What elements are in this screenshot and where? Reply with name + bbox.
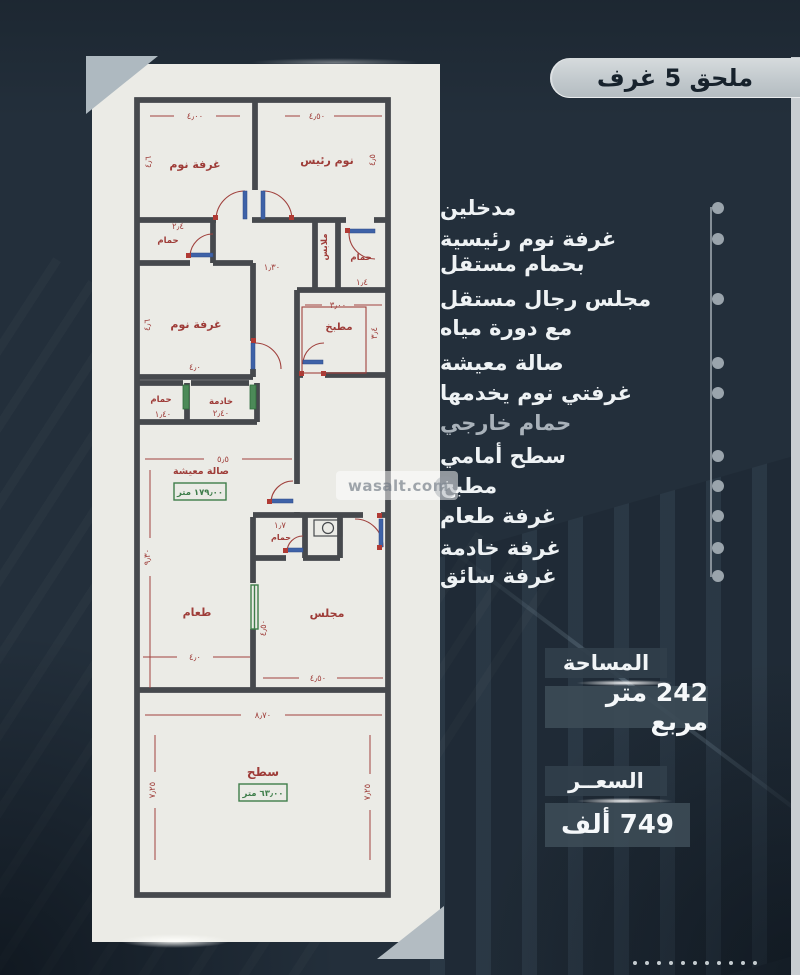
dim-label: ٢٫٤ — [172, 222, 184, 232]
title-badge: ملحق 5 غرف — [550, 58, 800, 98]
feature-item: سطح أمامي — [440, 442, 700, 470]
feature-item: بحمام مستقل — [440, 250, 700, 278]
room-label: حمام — [350, 253, 371, 263]
watermark-text: wasalt.com — [348, 477, 432, 497]
feature-item: غرفة طعام — [440, 502, 700, 530]
feature-text: مع دورة مياه — [440, 316, 572, 340]
room-label: غرفة نوم — [170, 318, 221, 331]
floorplan-drawing: غرفة نومنوم رئيسحمامملابسحمامغرفة نوممطب… — [92, 64, 440, 942]
feature-item: مجلس رجال مستقل — [440, 285, 700, 313]
price-value-text: 749 ألف — [561, 810, 674, 840]
room-label: خادمة — [209, 397, 233, 407]
feature-text: غرفة خادمة — [440, 536, 561, 560]
feature-text: حمام خارجي — [440, 411, 571, 435]
feature-item: غرفتي نوم يخدمها — [440, 379, 700, 407]
bullet-icon — [712, 480, 724, 492]
feature-text: مدخلين — [440, 196, 516, 220]
area-labels: ١٧٩٫٠٠ متر٦٣٫٠٠ متر — [176, 488, 284, 799]
room-label: طعام — [183, 606, 212, 619]
room-label: مجلس — [310, 607, 345, 620]
area-header: المساحة — [545, 648, 667, 678]
price-title: السعــر — [568, 769, 644, 793]
price-value: 749 ألف — [545, 803, 690, 847]
decorative-dots — [633, 961, 757, 965]
listing-poster: غرفة نومنوم رئيسحمامملابسحمامغرفة نوممطب… — [0, 0, 800, 975]
bullet-icon — [712, 542, 724, 554]
room-label: سطح — [247, 765, 279, 779]
feature-item: مدخلين — [440, 194, 700, 222]
feature-item: مطبخ — [440, 472, 700, 500]
feature-item: غرفة خادمة — [440, 534, 700, 562]
bullet-icon — [712, 233, 724, 245]
room-label: ملابس — [320, 234, 330, 261]
bullet-icon — [712, 387, 724, 399]
dim-label: ٤٫٠ — [189, 363, 201, 373]
dim-label: ٨٫٧٠ — [255, 711, 271, 721]
dim-label: ٧٫٢٥ — [363, 784, 373, 800]
feature-text: غرفة سائق — [440, 564, 557, 588]
dim-label: ٤٫٥ — [368, 154, 378, 166]
dim-label: ١٫٤٠ — [155, 410, 171, 420]
feature-item: حمام خارجي — [440, 409, 700, 437]
bullet-icon — [712, 357, 724, 369]
dim-label: ١٫٤ — [356, 278, 368, 288]
dim-label: ١٫٧ — [274, 521, 286, 531]
bullet-icon — [712, 450, 724, 462]
room-label: حمام — [157, 236, 178, 246]
room-label: مطبخ — [325, 322, 352, 333]
room-label: نوم رئيس — [300, 154, 353, 167]
area-title: المساحة — [563, 651, 649, 675]
dim-label: ٣٫٠٠ — [330, 301, 346, 311]
dim-label: ٤٫٦ — [143, 319, 153, 331]
dim-label: ٤٫٥٠ — [310, 674, 326, 684]
dim-label: ٥٫٥ — [217, 455, 229, 465]
feature-item: صالة معيشة — [440, 349, 700, 377]
feature-item: مع دورة مياه — [440, 314, 700, 342]
bullet-icon — [712, 293, 724, 305]
dim-label: ٧٫٢٥ — [148, 782, 158, 798]
area-label: ١٧٩٫٠٠ متر — [176, 488, 223, 498]
dim-label: ٩٫٣٠ — [143, 549, 153, 565]
room-label: حمام — [150, 395, 171, 405]
area-value: 242 متر مربع — [545, 686, 708, 728]
room-label: صالة معيشة — [173, 466, 229, 477]
feature-text: صالة معيشة — [440, 351, 564, 375]
right-edge-strip — [791, 57, 800, 975]
dim-label: ٢٫٤٠ — [213, 409, 229, 419]
feature-text: غرفة نوم رئيسية — [440, 227, 616, 251]
area-label: ٦٣٫٠٠ متر — [242, 789, 284, 799]
dim-label: ٤٫٠ — [189, 653, 201, 663]
dim-label: ٤٫٠٠ — [187, 112, 203, 122]
dim-label: ٤٫٦ — [144, 156, 154, 168]
feature-text: غرفة طعام — [440, 504, 556, 528]
room-label: حمام — [271, 533, 291, 542]
area-value-text: 242 متر مربع — [545, 678, 708, 736]
dim-label: ٤٫٥٠ — [309, 112, 325, 122]
feature-text: سطح أمامي — [440, 444, 566, 468]
dim-label: ٤٫٥٠ — [259, 620, 269, 636]
feature-text: بحمام مستقل — [440, 252, 585, 276]
bullet-icon — [712, 202, 724, 214]
title-badge-label: ملحق 5 غرف — [597, 64, 753, 92]
bullet-icon — [712, 570, 724, 582]
feature-item: غرفة سائق — [440, 562, 700, 590]
feature-text: غرفتي نوم يخدمها — [440, 381, 632, 405]
feature-text: مجلس رجال مستقل — [440, 287, 651, 311]
watermark-logo-icon — [434, 476, 457, 499]
feature-item: غرفة نوم رئيسية — [440, 225, 700, 253]
bullet-icon — [712, 510, 724, 522]
dim-label: ٣٫٤ — [370, 327, 380, 339]
price-header: السعــر — [545, 766, 667, 796]
dim-label: ١٫٣٠ — [264, 263, 280, 273]
room-label: غرفة نوم — [169, 158, 220, 171]
